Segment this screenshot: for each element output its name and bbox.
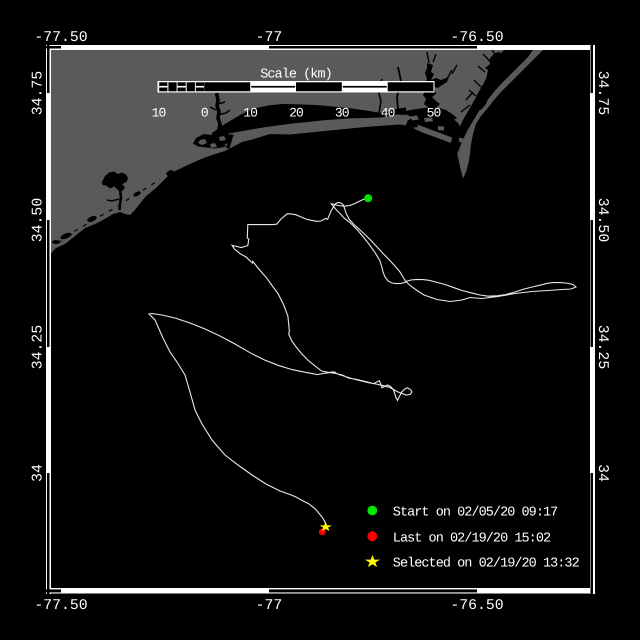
svg-text:34.25: 34.25 <box>31 325 47 369</box>
svg-text:10: 10 <box>243 106 257 121</box>
svg-text:10: 10 <box>152 106 166 121</box>
svg-text:-76.50: -76.50 <box>450 30 503 46</box>
svg-text:30: 30 <box>335 106 349 121</box>
svg-text:34.75: 34.75 <box>594 71 610 115</box>
svg-text:34: 34 <box>31 464 47 482</box>
svg-text:Last on 02/19/20 15:02: Last on 02/19/20 15:02 <box>393 531 551 546</box>
svg-text:-77: -77 <box>256 30 283 46</box>
svg-text:20: 20 <box>289 106 303 121</box>
svg-text:40: 40 <box>381 106 395 121</box>
svg-text:34.50: 34.50 <box>594 198 610 242</box>
svg-text:-77: -77 <box>256 598 283 614</box>
svg-text:34.75: 34.75 <box>31 71 47 115</box>
svg-text:Start on 02/05/20 09:17: Start on 02/05/20 09:17 <box>393 506 558 521</box>
svg-text:-77.50: -77.50 <box>34 598 87 614</box>
svg-text:Scale (km): Scale (km) <box>260 68 332 83</box>
svg-text:-76.50: -76.50 <box>450 598 503 614</box>
svg-text:34: 34 <box>594 464 610 482</box>
svg-text:34.50: 34.50 <box>31 198 47 242</box>
svg-text:-77.50: -77.50 <box>34 30 87 46</box>
svg-text:0: 0 <box>201 106 208 121</box>
svg-text:50: 50 <box>427 106 441 121</box>
svg-text:34.25: 34.25 <box>594 325 610 369</box>
svg-text:Selected on 02/19/20 13:32: Selected on 02/19/20 13:32 <box>393 557 580 572</box>
